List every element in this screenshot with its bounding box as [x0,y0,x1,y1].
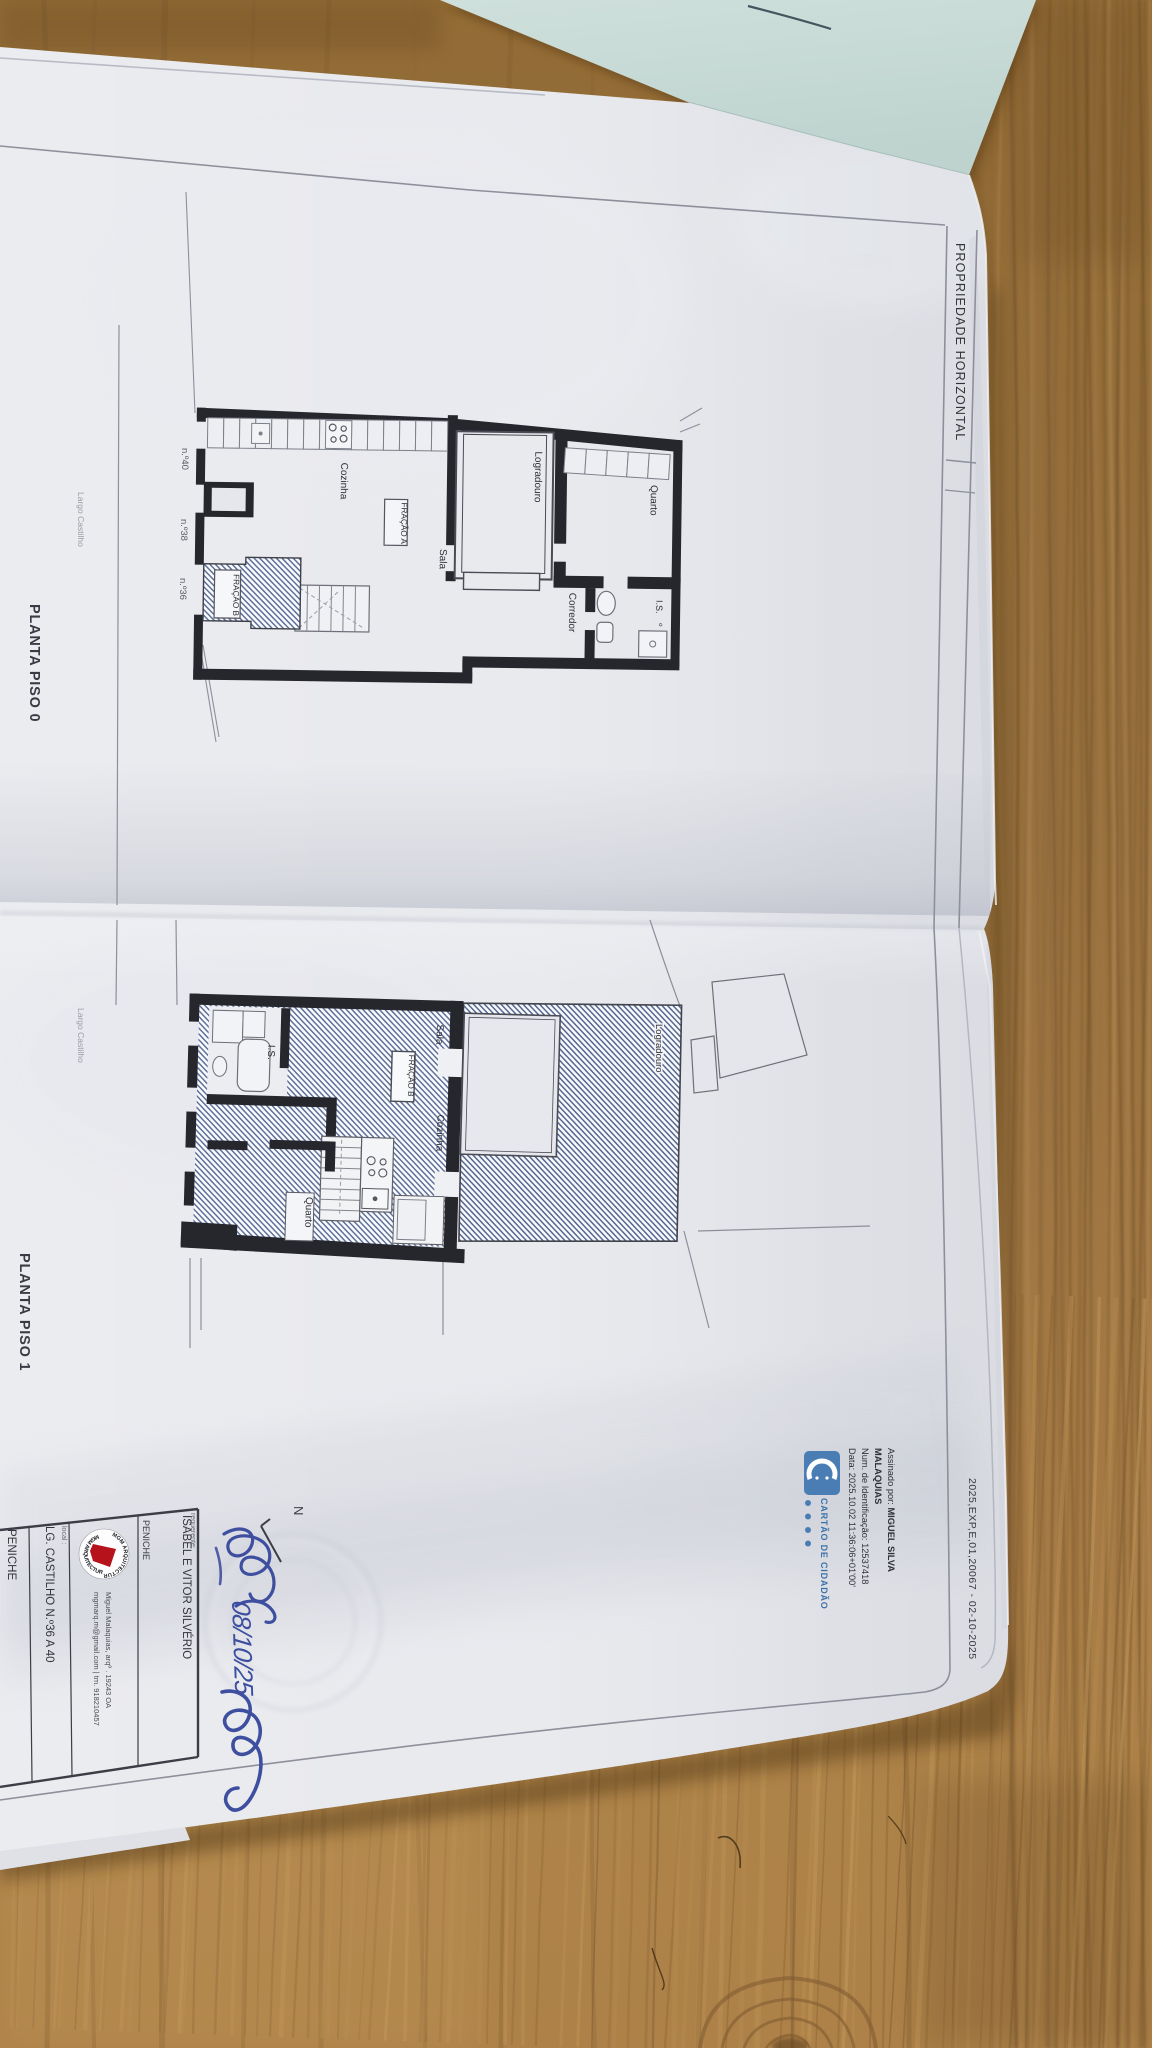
svg-text:MALAQUIAS: MALAQUIAS [873,1448,883,1504]
svg-text:PENICHE: PENICHE [5,1529,17,1580]
svg-text:2025,EXP,E,01,20067 - 02-10-20: 2025,EXP,E,01,20067 - 02-10-2025 [966,1478,978,1660]
svg-text:I.S.: I.S. [265,1045,276,1060]
svg-text:08/10/25: 08/10/25 [226,1599,259,1697]
svg-text:I.S.: I.S. [654,600,664,614]
svg-text:Miguel Malaquias, arqº . 192: Miguel Malaquias, arqº . 19243 OA [104,1592,113,1708]
svg-text:Sala: Sala [437,549,448,570]
svg-text:Corredor: Corredor [566,593,578,633]
svg-text:PROPRIEDADE HORIZONTAL: PROPRIEDADE HORIZONTAL [953,243,967,441]
svg-text:Num. de Identificação: 1253741: Num. de Identificação: 12537418 [860,1448,870,1584]
svg-text:Assinado por: MIGUEL SILVA: Assinado por: MIGUEL SILVA [886,1448,896,1572]
svg-text:FRAÇÃO A: FRAÇÃO A [399,502,410,544]
svg-text:Data: 2025.10.02 11:36:06+01'0: Data: 2025.10.02 11:36:06+01'00' [847,1448,857,1587]
svg-text:local :: local : [60,1526,67,1544]
svg-text:FRAÇÃO B: FRAÇÃO B [406,1055,417,1098]
svg-text:Largo Castilho: Largo Castilho [76,1008,86,1063]
svg-text:LG. CASTILHO N.º36 A 40: LG. CASTILHO N.º36 A 40 [43,1526,55,1663]
svg-text:n.º38: n.º38 [178,519,189,541]
svg-text:n.º36: n.º36 [177,578,188,600]
svg-text:Logradouro: Logradouro [653,1024,664,1073]
svg-text:Sala: Sala [433,1024,445,1045]
svg-text:FRAÇÃO B: FRAÇÃO B [231,574,242,617]
svg-text:Cozinha: Cozinha [338,463,350,500]
svg-text:Quarto: Quarto [647,485,658,516]
svg-text:Largo Castilho: Largo Castilho [76,492,86,547]
svg-text:Quarto: Quarto [302,1197,314,1228]
svg-text:Cozinha: Cozinha [433,1114,445,1151]
svg-text:mgmarq.m@gmail.com | tm. 918: mgmarq.m@gmail.com | tm. 918210457 [92,1592,101,1726]
svg-text:PLANTA PISO 1: PLANTA PISO 1 [16,1253,32,1371]
svg-text:PENICHE: PENICHE [141,1520,151,1560]
svg-text:ISABEL E VITOR SILVÉRIO: ISABEL E VITOR SILVÉRIO [180,1515,193,1659]
svg-text:N: N [291,1506,306,1515]
svg-text:n.º40: n.º40 [179,448,190,470]
svg-text:PLANTA PISO 0: PLANTA PISO 0 [26,604,42,722]
svg-text:CARTÃO DE CIDADÃO: CARTÃO DE CIDADÃO [819,1498,829,1610]
svg-text:Logradouro: Logradouro [532,451,544,503]
